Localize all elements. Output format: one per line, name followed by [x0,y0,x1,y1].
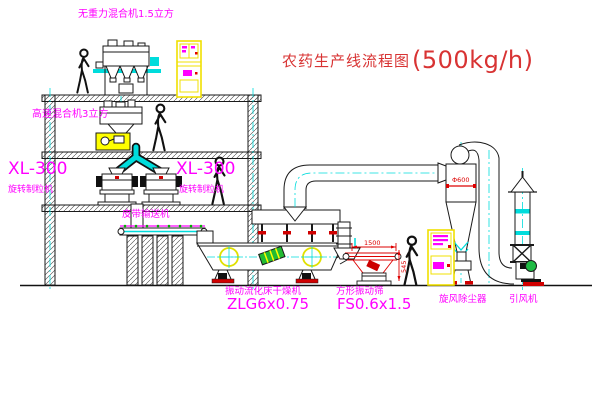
label-screen-model: FS0.6x1.5 [337,297,411,312]
control-cabinet-right [428,230,454,285]
vibrating-screen-drawing [343,243,401,285]
label-high-speed-mixer: 高速混合机3立方 [32,110,108,120]
label-gravity-free-mixer: 无重力混合机1.5立方 [78,10,174,20]
granulator-left-drawing [96,168,138,205]
label-belt-conveyor: 皮带输送机 [122,210,170,220]
label-cyclone: 旋风除尘器 [439,295,487,305]
label-granulator-right-model: XL-300 [176,161,235,178]
label-granulator-left-name: 旋转制粒机 [8,186,53,195]
label-fan: 引风机 [509,295,538,305]
induced-draft-fan-drawing [516,261,544,287]
worker-figure-top [77,50,88,93]
dim-screen-length: 1500 [364,240,381,247]
worker-figure-floor2 [153,105,165,151]
high-speed-mixer-drawing [96,96,142,150]
dim-screen-height: 545 [401,261,408,273]
label-granulator-left-model: XL-300 [8,161,67,178]
exhaust-duct [284,163,454,209]
diagram-title-capacity: (500kg/h) [412,46,533,74]
diagram-title: 农药生产线流程图 (500kg/h) [282,46,533,74]
conveyor-supports [127,236,183,285]
pesticide-line-flow-diagram: 农药生产线流程图 (500kg/h) 无重力混合机1.5立方 高速混合机3立方 … [0,0,600,403]
fluid-bed-dryer-drawing [197,207,354,283]
gravity-free-mixer-drawing [93,40,161,95]
label-dryer-model: ZLG6x0.75 [227,297,309,312]
label-granulator-right-name: 旋转制粒机 [179,186,224,195]
flexible-joint [510,245,534,262]
riser-pipe [479,150,514,284]
diagram-title-text: 农药生产线流程图 [282,50,410,71]
control-cabinet-top [177,41,201,97]
dim-cyclone-diameter: Φ600 [452,177,470,184]
